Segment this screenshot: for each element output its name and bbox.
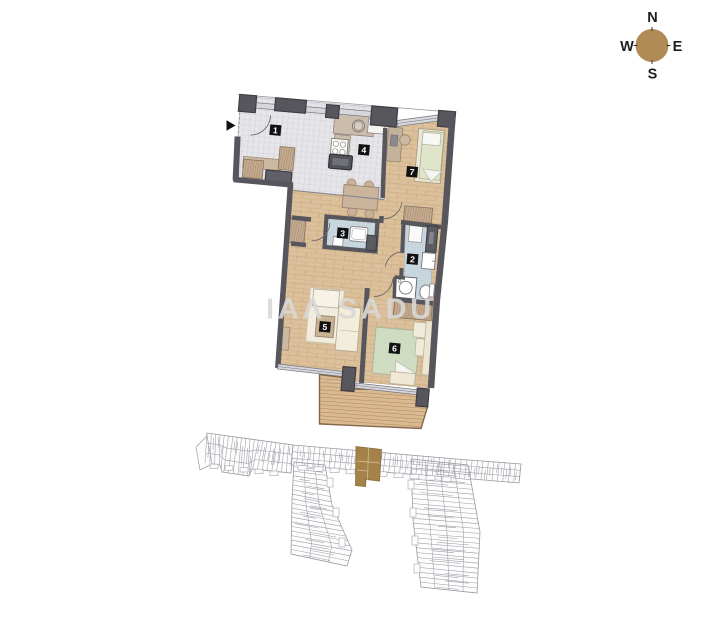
svg-text:IAΛ SADU: IAΛ SADU: [266, 294, 435, 326]
svg-text:N: N: [647, 10, 657, 26]
svg-text:W: W: [620, 39, 634, 55]
svg-text:E: E: [673, 39, 683, 55]
svg-text:S: S: [648, 67, 658, 83]
